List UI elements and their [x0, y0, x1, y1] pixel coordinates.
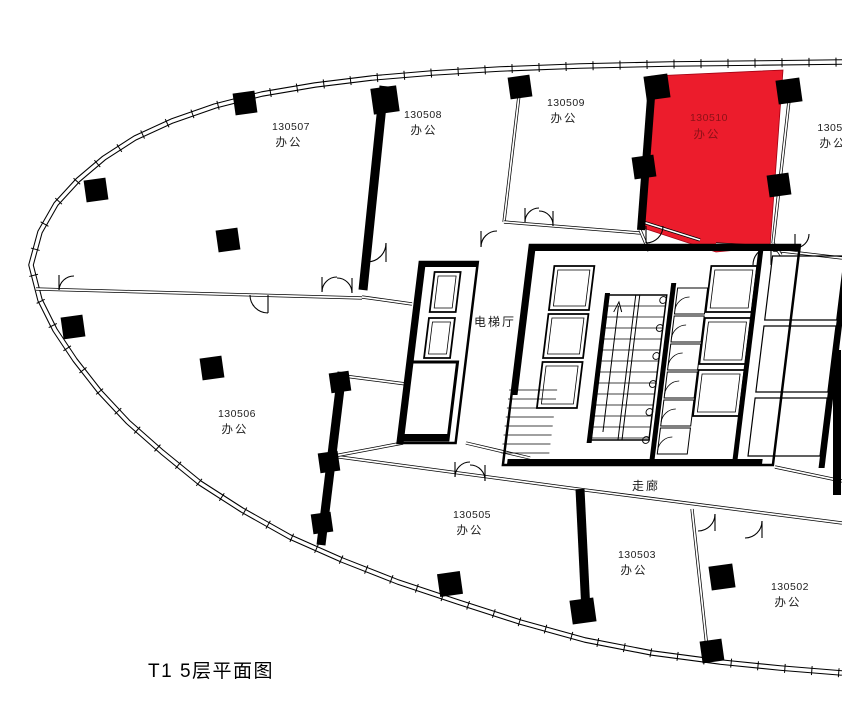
column — [200, 356, 225, 381]
column — [370, 85, 399, 114]
column — [216, 228, 241, 253]
elevator-cell — [706, 266, 758, 312]
bank-wall — [400, 434, 449, 440]
door-arc — [481, 231, 497, 247]
column — [84, 178, 109, 203]
door-arc — [470, 465, 485, 481]
room-number: 130505 — [453, 509, 491, 521]
stall-door-arc — [665, 381, 680, 394]
stall-door-arc — [658, 437, 673, 450]
column — [643, 73, 670, 100]
partition-wall-core — [334, 443, 403, 456]
column — [708, 563, 735, 590]
partition-wall-core — [344, 376, 406, 384]
column — [311, 512, 334, 535]
mullion-tick — [811, 666, 812, 675]
elevator-cell-car — [697, 374, 740, 412]
annex-room — [756, 326, 836, 392]
room-type: 办公 — [820, 136, 842, 150]
mullion-tick — [731, 659, 732, 668]
partition-wall-core — [36, 289, 362, 298]
column — [61, 315, 86, 340]
room-label-130503[interactable]: 130503 办公 — [618, 549, 656, 577]
room-number: 130506 — [218, 408, 256, 420]
elevator-cell-car — [541, 366, 578, 404]
column — [632, 155, 657, 180]
column — [318, 451, 341, 474]
room-type: 办公 — [775, 595, 802, 609]
mullion-tick — [485, 65, 486, 74]
room-type: 办公 — [457, 523, 484, 537]
room-number: 130503 — [618, 549, 656, 561]
partition-wall-core — [466, 443, 530, 458]
partition-wall-core — [775, 467, 842, 481]
elevator-cell-car — [710, 270, 753, 308]
column — [233, 91, 258, 116]
door-arc — [250, 295, 268, 313]
mullion-tick — [838, 668, 839, 677]
shear-wall — [363, 86, 384, 290]
door-arc — [698, 514, 715, 531]
mullion-tick — [677, 652, 678, 661]
core-wall — [732, 250, 763, 465]
partition-wall-core — [585, 490, 842, 523]
core-wall — [507, 459, 763, 466]
room-type: 办公 — [621, 563, 648, 577]
door-arc — [337, 278, 352, 293]
partition-wall-core — [504, 87, 520, 222]
room-number: 130511 — [817, 122, 842, 134]
room-number: 130507 — [272, 121, 310, 133]
door-arcs — [59, 208, 809, 538]
elevator-cell-car — [553, 270, 589, 306]
door-arc — [745, 521, 762, 538]
mullion-tick — [458, 67, 459, 76]
room-label-130505[interactable]: 130505 办公 — [453, 509, 491, 537]
room-label-130506[interactable]: 130506 办公 — [218, 408, 256, 436]
door-arc — [59, 276, 74, 290]
door-arc — [322, 277, 337, 292]
mullion-tick — [758, 661, 759, 670]
column — [508, 75, 533, 100]
mullion-tick — [323, 79, 324, 88]
annex-room — [765, 256, 842, 320]
bank-wall — [419, 262, 478, 267]
stall-door-arc — [668, 353, 683, 366]
room-type: 办公 — [694, 127, 721, 141]
partition-wall-core — [362, 297, 412, 304]
room-type: 办公 — [411, 123, 438, 137]
core-wall — [649, 283, 676, 463]
annex-room — [748, 398, 827, 456]
zone-label-corridor: 走廊 — [632, 478, 660, 493]
floor-plan-svg: 130507 办公 130508 办公 130509 办公 130510 办公 … — [0, 0, 842, 701]
room-number: 130502 — [771, 581, 809, 593]
room-number: 130508 — [404, 109, 442, 121]
room-label-130507[interactable]: 130507 办公 — [272, 121, 310, 149]
mullion-tick — [350, 76, 351, 85]
shear-wall — [580, 489, 586, 612]
room-type: 办公 — [551, 111, 578, 125]
column — [437, 571, 463, 597]
door-arc — [525, 208, 539, 222]
stall-door-arc — [671, 325, 686, 338]
partition-wall-core — [504, 222, 640, 233]
floor-plan: 130507 办公 130508 办公 130509 办公 130510 办公 … — [0, 0, 842, 701]
mullion-tick — [404, 71, 405, 80]
elevator-cell — [693, 370, 745, 416]
zone-label-elevator-hall: 电梯厅 — [474, 315, 516, 329]
mullion-tick — [431, 69, 432, 78]
service-core — [395, 245, 842, 468]
drawing-caption: T1 5层平面图 — [148, 661, 274, 682]
elevator-cell-car — [704, 322, 747, 360]
column — [329, 371, 352, 394]
column — [767, 173, 792, 198]
mullion-tick — [785, 664, 786, 673]
room-label-130511[interactable]: 130511 办公 — [817, 122, 842, 150]
room-number: 130510 — [690, 112, 728, 124]
room-type: 办公 — [276, 135, 303, 149]
stall-door-arc — [661, 409, 676, 422]
elevator-cell-car — [548, 318, 584, 354]
room-number: 130509 — [547, 97, 585, 109]
mullion-tick — [377, 73, 378, 82]
room-label-130502[interactable]: 130502 办公 — [771, 581, 809, 609]
column — [775, 77, 802, 104]
elevator-cell-car — [434, 276, 456, 308]
column — [700, 639, 725, 664]
room-type: 办公 — [222, 422, 249, 436]
elevator-cell-car — [429, 322, 451, 354]
elevator-cell — [699, 318, 751, 364]
partition-wall-core — [773, 250, 842, 258]
column — [569, 597, 596, 624]
room-label-130508[interactable]: 130508 办公 — [404, 109, 442, 137]
room-label-130509[interactable]: 130509 办公 — [547, 97, 585, 125]
stall-door-arc — [675, 297, 690, 310]
